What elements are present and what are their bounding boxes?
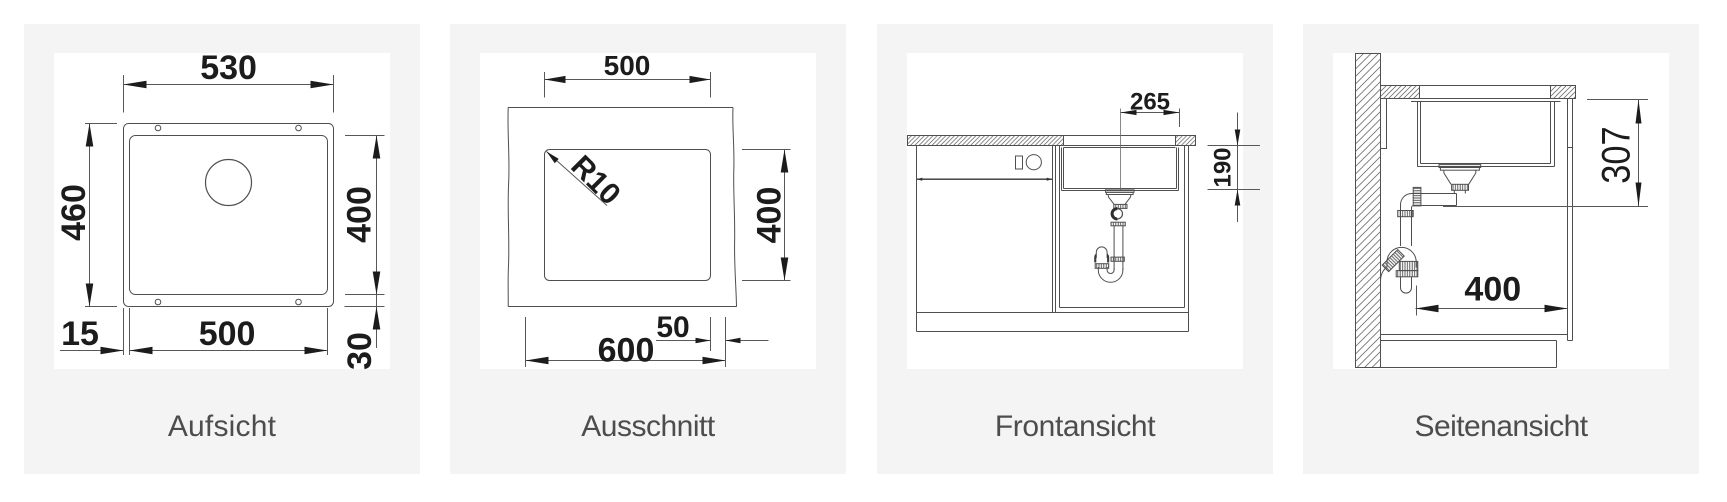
svg-text:15: 15 [61,315,99,353]
svg-text:460: 460 [55,184,93,241]
svg-text:530: 530 [200,49,257,87]
svg-text:50: 50 [656,311,689,344]
svg-text:265: 265 [1130,88,1170,115]
svg-text:500: 500 [199,315,256,353]
svg-text:30: 30 [341,332,379,370]
svg-text:500: 500 [604,50,651,81]
svg-text:400: 400 [341,186,379,243]
svg-text:307: 307 [1593,126,1638,183]
svg-text:190: 190 [1209,147,1236,187]
svg-text:600: 600 [598,331,655,369]
svg-text:400: 400 [751,187,789,244]
svg-text:400: 400 [1464,270,1521,308]
